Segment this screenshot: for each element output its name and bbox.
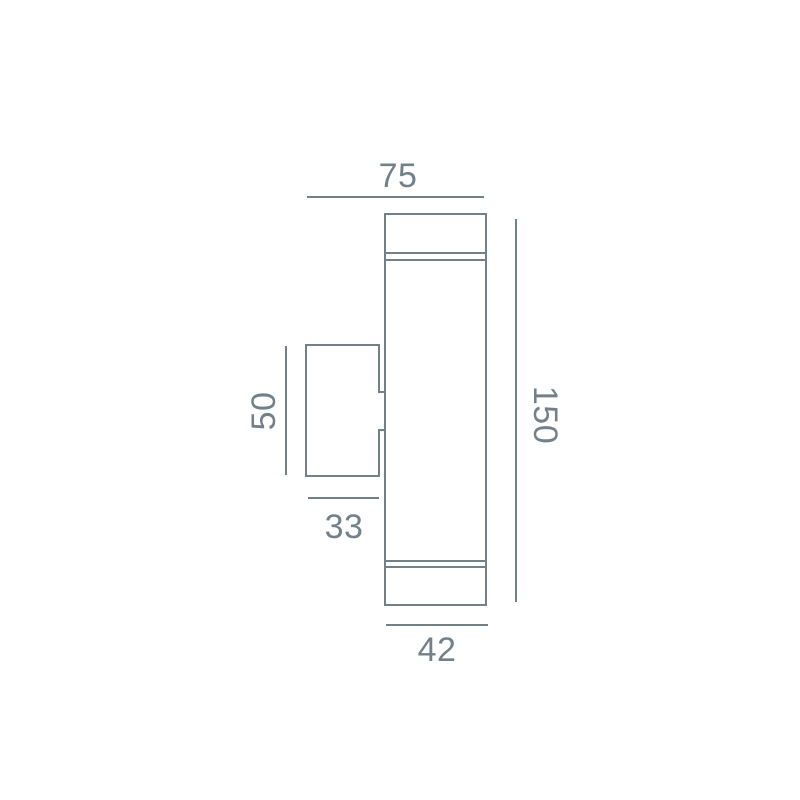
dim-label-bracket-depth: 33: [294, 509, 394, 545]
mount-bracket-outline: [306, 345, 385, 476]
drawing-linework: [0, 0, 800, 800]
fixture-body-outline: [385, 214, 486, 605]
dim-label-body-diameter: 42: [387, 632, 487, 668]
dim-label-total-depth: 75: [348, 158, 448, 194]
dim-label-body-height: 150: [527, 355, 563, 475]
dimension-drawing: 75 150 50 33 42: [0, 0, 800, 800]
dim-label-bracket-height: 50: [246, 351, 282, 471]
